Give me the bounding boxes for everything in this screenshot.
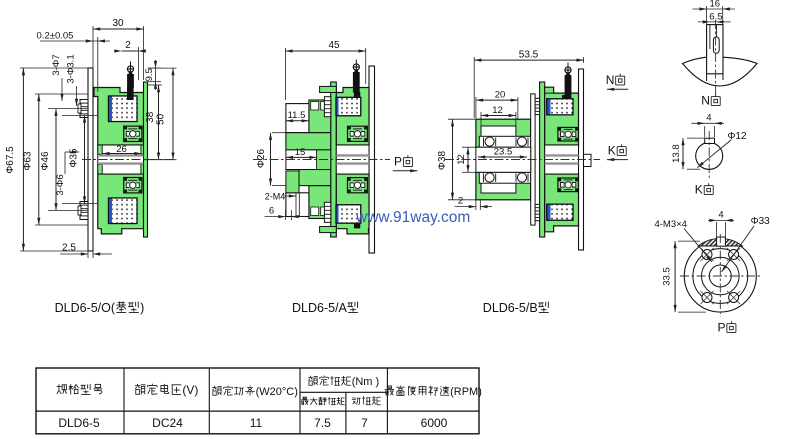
svg-text:38: 38 xyxy=(145,111,156,123)
svg-text:Φ67.5: Φ67.5 xyxy=(5,146,16,174)
svg-text:53.5: 53.5 xyxy=(519,50,539,61)
svg-text:N: N xyxy=(701,94,710,108)
svg-text:20: 20 xyxy=(495,90,506,101)
svg-text:Φ38: Φ38 xyxy=(437,151,448,171)
svg-text:4-M3×4: 4-M3×4 xyxy=(654,219,686,230)
svg-text:3-Φ7: 3-Φ7 xyxy=(51,54,62,75)
svg-text:0.2±0.05: 0.2±0.05 xyxy=(37,31,74,42)
svg-text:DLD6-5/B: DLD6-5/B xyxy=(483,301,538,315)
svg-text:15: 15 xyxy=(295,147,306,158)
svg-text:4: 4 xyxy=(718,210,723,221)
svg-text:6: 6 xyxy=(269,206,274,217)
svg-text:): ) xyxy=(140,301,144,315)
svg-text:13.8: 13.8 xyxy=(671,144,682,163)
svg-text:45: 45 xyxy=(328,40,340,51)
svg-text:Φ46: Φ46 xyxy=(40,151,51,171)
svg-text:Φ12: Φ12 xyxy=(727,131,747,142)
svg-text:9.5: 9.5 xyxy=(144,68,155,81)
svg-text:4: 4 xyxy=(706,113,711,124)
svg-text:2: 2 xyxy=(458,196,463,207)
svg-text:Φ63: Φ63 xyxy=(23,151,34,171)
svg-text:K: K xyxy=(695,183,703,197)
svg-text:www.91way.com: www.91way.com xyxy=(355,209,470,226)
svg-text:Φ33: Φ33 xyxy=(751,216,771,227)
svg-text:7.5: 7.5 xyxy=(314,416,331,430)
svg-text:DLD6-5/O(: DLD6-5/O( xyxy=(55,301,116,315)
svg-text:50: 50 xyxy=(156,113,167,125)
svg-text:33.5: 33.5 xyxy=(662,267,673,286)
svg-text:2-M4: 2-M4 xyxy=(265,192,286,202)
svg-text:12: 12 xyxy=(492,105,503,116)
svg-text:P: P xyxy=(394,155,402,169)
svg-text:DLD6-5: DLD6-5 xyxy=(58,416,100,430)
svg-text:2.5: 2.5 xyxy=(62,243,76,254)
svg-text:(V): (V) xyxy=(182,383,198,397)
svg-text:(W20°C): (W20°C) xyxy=(256,386,298,398)
svg-text:11.5: 11.5 xyxy=(288,110,306,121)
svg-text:6000: 6000 xyxy=(421,416,448,430)
svg-text:16: 16 xyxy=(710,0,721,10)
svg-text:26: 26 xyxy=(116,144,127,155)
svg-text:11: 11 xyxy=(250,416,263,430)
svg-text:6.5: 6.5 xyxy=(709,12,722,23)
svg-text:23.5: 23.5 xyxy=(494,147,513,158)
svg-text:2: 2 xyxy=(125,40,131,51)
svg-text:3-Φ3.1: 3-Φ3.1 xyxy=(66,54,77,83)
svg-text:DLD6-5/A: DLD6-5/A xyxy=(292,301,348,315)
svg-text:Φ26: Φ26 xyxy=(256,149,267,169)
svg-text:(Nm ): (Nm ) xyxy=(352,376,380,388)
svg-text:30: 30 xyxy=(112,18,124,29)
svg-text:(RPM): (RPM) xyxy=(450,386,482,398)
svg-text:7: 7 xyxy=(361,416,368,430)
svg-text:P: P xyxy=(718,321,726,335)
svg-text:K: K xyxy=(608,144,616,158)
svg-text:3-Φ6: 3-Φ6 xyxy=(55,174,66,195)
svg-text:DC24: DC24 xyxy=(152,416,183,430)
svg-text:N: N xyxy=(606,73,615,87)
